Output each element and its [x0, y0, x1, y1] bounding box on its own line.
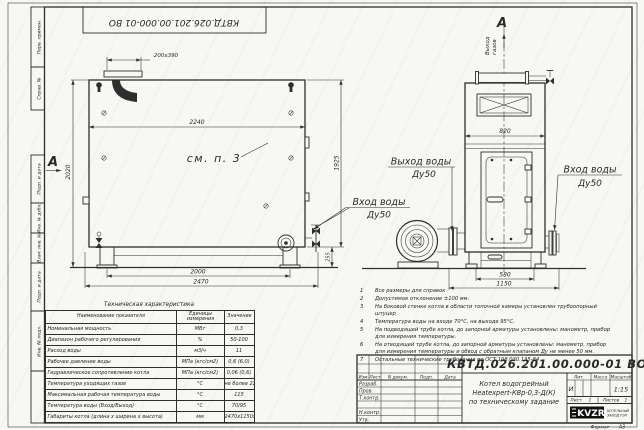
titleblock-row-tkontr: Т.контр.	[359, 396, 380, 402]
tech-row: Максимальная рабочая температура воды°С1…	[45, 390, 254, 401]
tech-col-units: Единицы измерения	[176, 311, 224, 324]
tech-cell: Максимальная рабочая температура воды	[45, 390, 176, 401]
note-item: 5На подводящей трубе котла, до запорной …	[360, 327, 616, 341]
note-text: Допустимое отклонение ±100 мм.	[375, 296, 616, 303]
margin-label-vzam-inv: Взам. инв. №	[37, 233, 43, 263]
titleblock-lit-value: И	[569, 385, 574, 393]
tech-cell: мм	[176, 412, 224, 423]
margin-label-podp-data-2: Подп. и дата	[37, 271, 43, 302]
tech-cell: 50-100	[224, 335, 254, 346]
titleblock-col-data: Дата	[443, 375, 456, 381]
titleblock-sheet-label: Лист	[569, 398, 582, 404]
margin-label-inv-dubl: Инв. № дубл.	[37, 203, 43, 232]
tech-row: Гидравлическое сопротивление котлаМПа (к…	[45, 368, 254, 379]
note-item: 2Допустимое отклонение ±100 мм.	[360, 296, 616, 303]
dim-2000: 2000	[190, 269, 205, 276]
titleblock-row-prov: Пров.	[359, 389, 373, 395]
tech-cell: %	[176, 335, 224, 346]
note-text: На отводящей трубе котла, до запорной ар…	[375, 342, 616, 356]
section-label-left: А	[47, 155, 58, 170]
note-text: Остальные технические требования по ОСТ …	[375, 357, 616, 364]
tech-cell: Габариты котла (длина х ширина х высота)	[45, 412, 176, 423]
tech-cell: Рабочее давление воды	[45, 357, 176, 368]
titleblock-sheets-label: Листов	[602, 398, 620, 404]
titleblock-name-line2: Heatexpert-КВр-0,3-Д(К)	[472, 389, 555, 397]
tech-cell: Температура уходящих газов	[45, 379, 176, 390]
titleblock-col-izm: Изм	[359, 375, 369, 381]
tech-cell: °С	[176, 379, 224, 390]
note-number: 6	[360, 342, 375, 356]
company-name-line2: ЗАВОД РЭП	[607, 414, 628, 418]
fan-symbol	[397, 221, 450, 269]
note-text: На подводящей трубе котла, до запорной а…	[375, 327, 616, 341]
note-number: 7	[360, 357, 375, 364]
flue-direction-line2: газов	[492, 39, 498, 55]
margin-label-perv-primen: Перв. примен.	[37, 20, 43, 55]
tech-row: Температура уходящих газов°Сне более 220	[45, 379, 254, 390]
tech-row: Габариты котла (длина х ширина х высота)…	[45, 412, 254, 423]
flange-symbol	[278, 235, 294, 251]
titleblock-row-razrab: Разраб.	[359, 382, 378, 388]
tech-cell: 11	[224, 346, 254, 357]
tech-cell: Температура воды (Вход/Выход)	[45, 401, 176, 412]
tech-cell: 0,3	[224, 324, 254, 335]
detail-reference: см. п. 3	[187, 152, 242, 165]
titleblock-sheets-value: 1	[625, 398, 628, 404]
notes-list: 1Все размеры для справок 2Допустимое отк…	[360, 288, 616, 365]
drawing-sheet: КВТД.026.201.00.000-01 ВО Перв. примен. …	[0, 0, 644, 430]
tech-row: Номинальная мощностьМВт0,3	[45, 324, 254, 335]
tech-cell: не более 220	[224, 379, 254, 390]
tech-row: Диапазон рабочего регулирования%50-100	[45, 335, 254, 346]
note-item: 3На боковой стенке котла в области топоч…	[360, 304, 616, 318]
tech-cell: МПа (кгс/см2)	[176, 357, 224, 368]
format-value: А3	[618, 425, 625, 430]
titleblock-name-line3: по техническому задание	[469, 398, 559, 406]
company-name-line1: КОТЕЛЬНЫЙ	[607, 408, 629, 413]
side-water-in-label: Вход воды	[352, 197, 406, 208]
tech-col-value: Значение	[224, 311, 254, 324]
side-view	[70, 80, 338, 268]
titleblock-col-doc: N докум.	[388, 375, 408, 381]
note-number: 4	[360, 319, 375, 326]
titleblock-col-podp: Подп.	[420, 375, 433, 381]
margin-label-inv-podl: Инв. № подл.	[37, 325, 43, 357]
note-item: 7Остальные технические требования по ОСТ…	[360, 357, 616, 364]
dim-2020: 2020	[65, 164, 72, 179]
dim-255: 255	[326, 252, 332, 262]
titleblock-name-line1: Котел водогрейный	[479, 380, 549, 388]
note-number: 2	[360, 296, 375, 303]
side-view-dimensions	[71, 80, 344, 288]
dim-580: 580	[499, 272, 511, 279]
dim-flue: 200х390	[154, 53, 179, 59]
drain-valve-symbol	[96, 232, 103, 248]
lifting-lug-right	[288, 82, 294, 92]
flue-direction-line1: Выход	[485, 36, 491, 55]
note-item: 1Все размеры для справок	[360, 288, 616, 295]
note-number: 1	[360, 288, 375, 295]
lifting-lug-left	[96, 82, 102, 92]
note-number: 5	[360, 327, 375, 341]
titleblock-row-nkontr: Н.контр.	[359, 410, 380, 416]
side-water-in-dn: Ду50	[366, 211, 391, 221]
tech-cell: Диапазон рабочего регулирования	[45, 335, 176, 346]
water-out-dn: Ду50	[411, 170, 436, 180]
tech-row: Рабочее давление водыМПа (кгс/см2)0,6 (6…	[45, 357, 254, 368]
format-label: Формат	[591, 425, 610, 430]
tech-cell: °С	[176, 390, 224, 401]
dim-1925: 1925	[334, 155, 341, 170]
tech-cell: Расход воды	[45, 346, 176, 357]
tech-cell: 0,06 (0,6)	[224, 368, 254, 379]
tech-cell: м3/ч	[176, 346, 224, 357]
tech-row: Расход водым3/ч11	[45, 346, 254, 357]
side-water-in-callout	[314, 208, 410, 230]
dim-820: 820	[499, 128, 511, 135]
tech-table: Наименование показателя Единицы измерени…	[45, 310, 255, 423]
tech-cell: МВт	[176, 324, 224, 335]
tech-cell: 0,6 (6,0)	[224, 357, 254, 368]
tech-row: Температура воды (Вход/Выход)°С70/95	[45, 401, 254, 412]
note-text: На боковой стенке котла в области топочн…	[375, 304, 616, 318]
water-out-label: Выход воды	[391, 157, 452, 168]
top-stamp-doc-number: КВТД.026.201.00.000-01 ВО	[109, 17, 239, 27]
titleblock-scale-label: Масштаб	[611, 375, 632, 381]
tech-cell: Гидравлическое сопротивление котла	[45, 368, 176, 379]
tech-cell: 70/95	[224, 401, 254, 412]
titleblock-row-utv: Утв.	[359, 418, 369, 424]
side-valve-assembly	[305, 208, 349, 252]
water-out-flange	[449, 228, 465, 255]
water-in-flange	[545, 231, 559, 255]
company-logo-text: KVZR	[577, 409, 604, 419]
tech-cell: 2470х1150х2020	[224, 412, 254, 423]
titleblock-lit-label: Лит.	[573, 375, 584, 381]
water-in-dn: Ду50	[577, 179, 602, 189]
tech-table-header: Наименование показателя Единицы измерени…	[45, 311, 254, 324]
titleblock-col-list: Лист	[368, 375, 381, 381]
tech-cell: °С	[176, 401, 224, 412]
note-item: 4Температура воды на входе 70°С, на выхо…	[360, 319, 616, 326]
tech-cell: МПа (кгс/см2)	[176, 368, 224, 379]
titleblock-mass-label: Масса	[594, 375, 608, 381]
titleblock-scale-value: 1:15	[614, 386, 629, 394]
titleblock-sheet-value: 1	[589, 398, 592, 404]
note-number: 3	[360, 304, 375, 318]
dim-1150: 1150	[496, 281, 511, 288]
note-text: Температура воды на входе 70°С, на выход…	[375, 319, 616, 326]
note-item: 6На отводящей трубе котла, до запорной а…	[360, 342, 616, 356]
tech-cell: 115	[224, 390, 254, 401]
dim-2470: 2470	[193, 279, 208, 286]
water-in-label: Вход воды	[563, 165, 617, 176]
tech-col-name: Наименование показателя	[45, 311, 176, 324]
dim-2240: 2240	[189, 119, 204, 126]
margin-label-podp-data-1: Подп. и дата	[37, 163, 43, 194]
section-label-top: А	[496, 16, 507, 31]
tech-table-title: Техническая характеристика	[45, 302, 253, 308]
margin-label-sprav: Справ. №	[37, 77, 43, 100]
note-text: Все размеры для справок	[375, 288, 616, 295]
tech-cell: Номинальная мощность	[45, 324, 176, 335]
